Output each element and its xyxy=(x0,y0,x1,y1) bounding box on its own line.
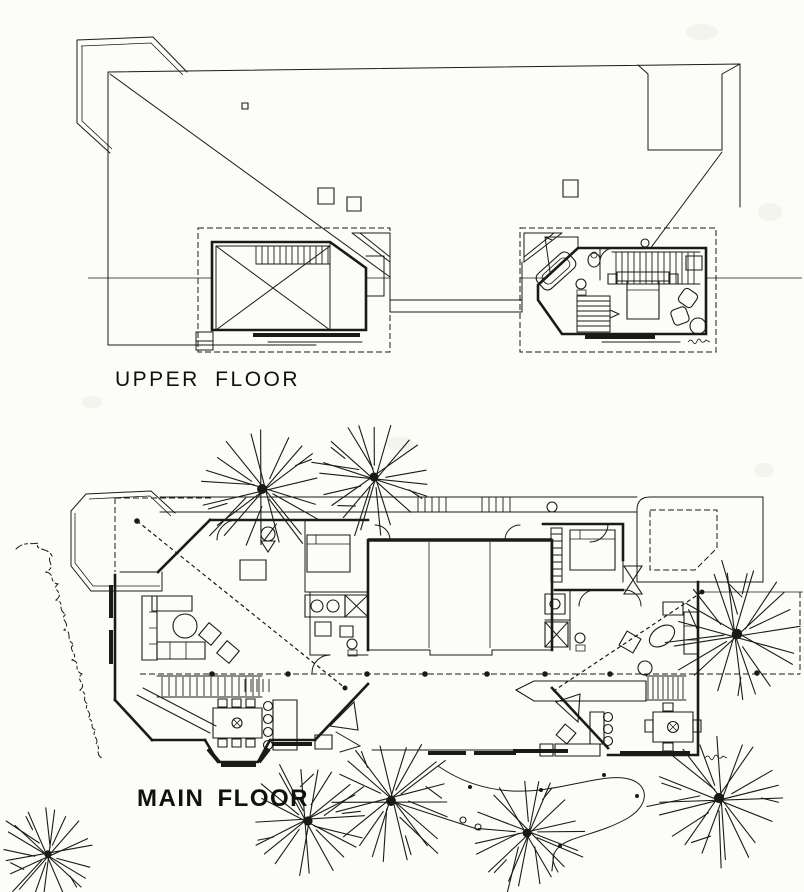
upper-floor-plan: UPPER FLOOR xyxy=(77,37,802,391)
tree xyxy=(303,404,446,549)
architect-signature-scribble xyxy=(705,755,727,760)
tree xyxy=(632,711,804,885)
exterior-step xyxy=(196,332,213,350)
wood-stove-right xyxy=(624,566,642,594)
tree xyxy=(192,421,332,556)
left-deck xyxy=(71,491,175,591)
closet xyxy=(240,560,266,580)
left-unit xyxy=(111,520,368,765)
overhang-diagonal-left xyxy=(137,521,345,688)
garage-court xyxy=(368,525,552,753)
main-stairs-left xyxy=(137,676,269,733)
island-bar xyxy=(516,681,646,701)
architect-signature-scribble xyxy=(688,339,710,344)
entry-steps xyxy=(418,497,510,512)
floor-plan-drawing: UPPER FLOOR xyxy=(0,0,804,892)
main-floor-label: MAIN FLOOR xyxy=(137,785,309,812)
bed-left-unit xyxy=(307,535,350,572)
tree xyxy=(648,544,804,723)
roof-skylights xyxy=(242,103,578,211)
bed-right-unit xyxy=(570,530,615,570)
dining-left xyxy=(213,699,262,747)
upper-right-bedroom-block xyxy=(520,228,716,352)
carport-patio xyxy=(637,497,763,597)
upper-left-bedroom-block xyxy=(196,228,390,352)
study-furniture xyxy=(619,602,698,675)
tree xyxy=(236,751,379,891)
dining-right xyxy=(645,703,701,751)
living-room-furniture xyxy=(142,596,239,663)
tree xyxy=(4,808,92,892)
overhang-diagonal-right xyxy=(552,592,702,692)
fireplace-left xyxy=(315,702,360,752)
upper-floor-label: UPPER FLOOR xyxy=(115,368,300,391)
garden-path xyxy=(438,766,644,872)
left-kitchen-bath xyxy=(305,592,368,673)
light-fixture xyxy=(547,502,557,512)
wood-stove xyxy=(261,527,275,552)
tree xyxy=(458,765,596,892)
main-stairs-right xyxy=(646,676,686,700)
double-door-swing xyxy=(579,590,641,606)
floor-plan-sheet: UPPER FLOOR xyxy=(0,0,804,892)
main-floor-plan: MAIN FLOOR xyxy=(4,404,804,892)
shrub-outline xyxy=(16,543,102,758)
entry-walkway xyxy=(160,497,637,512)
